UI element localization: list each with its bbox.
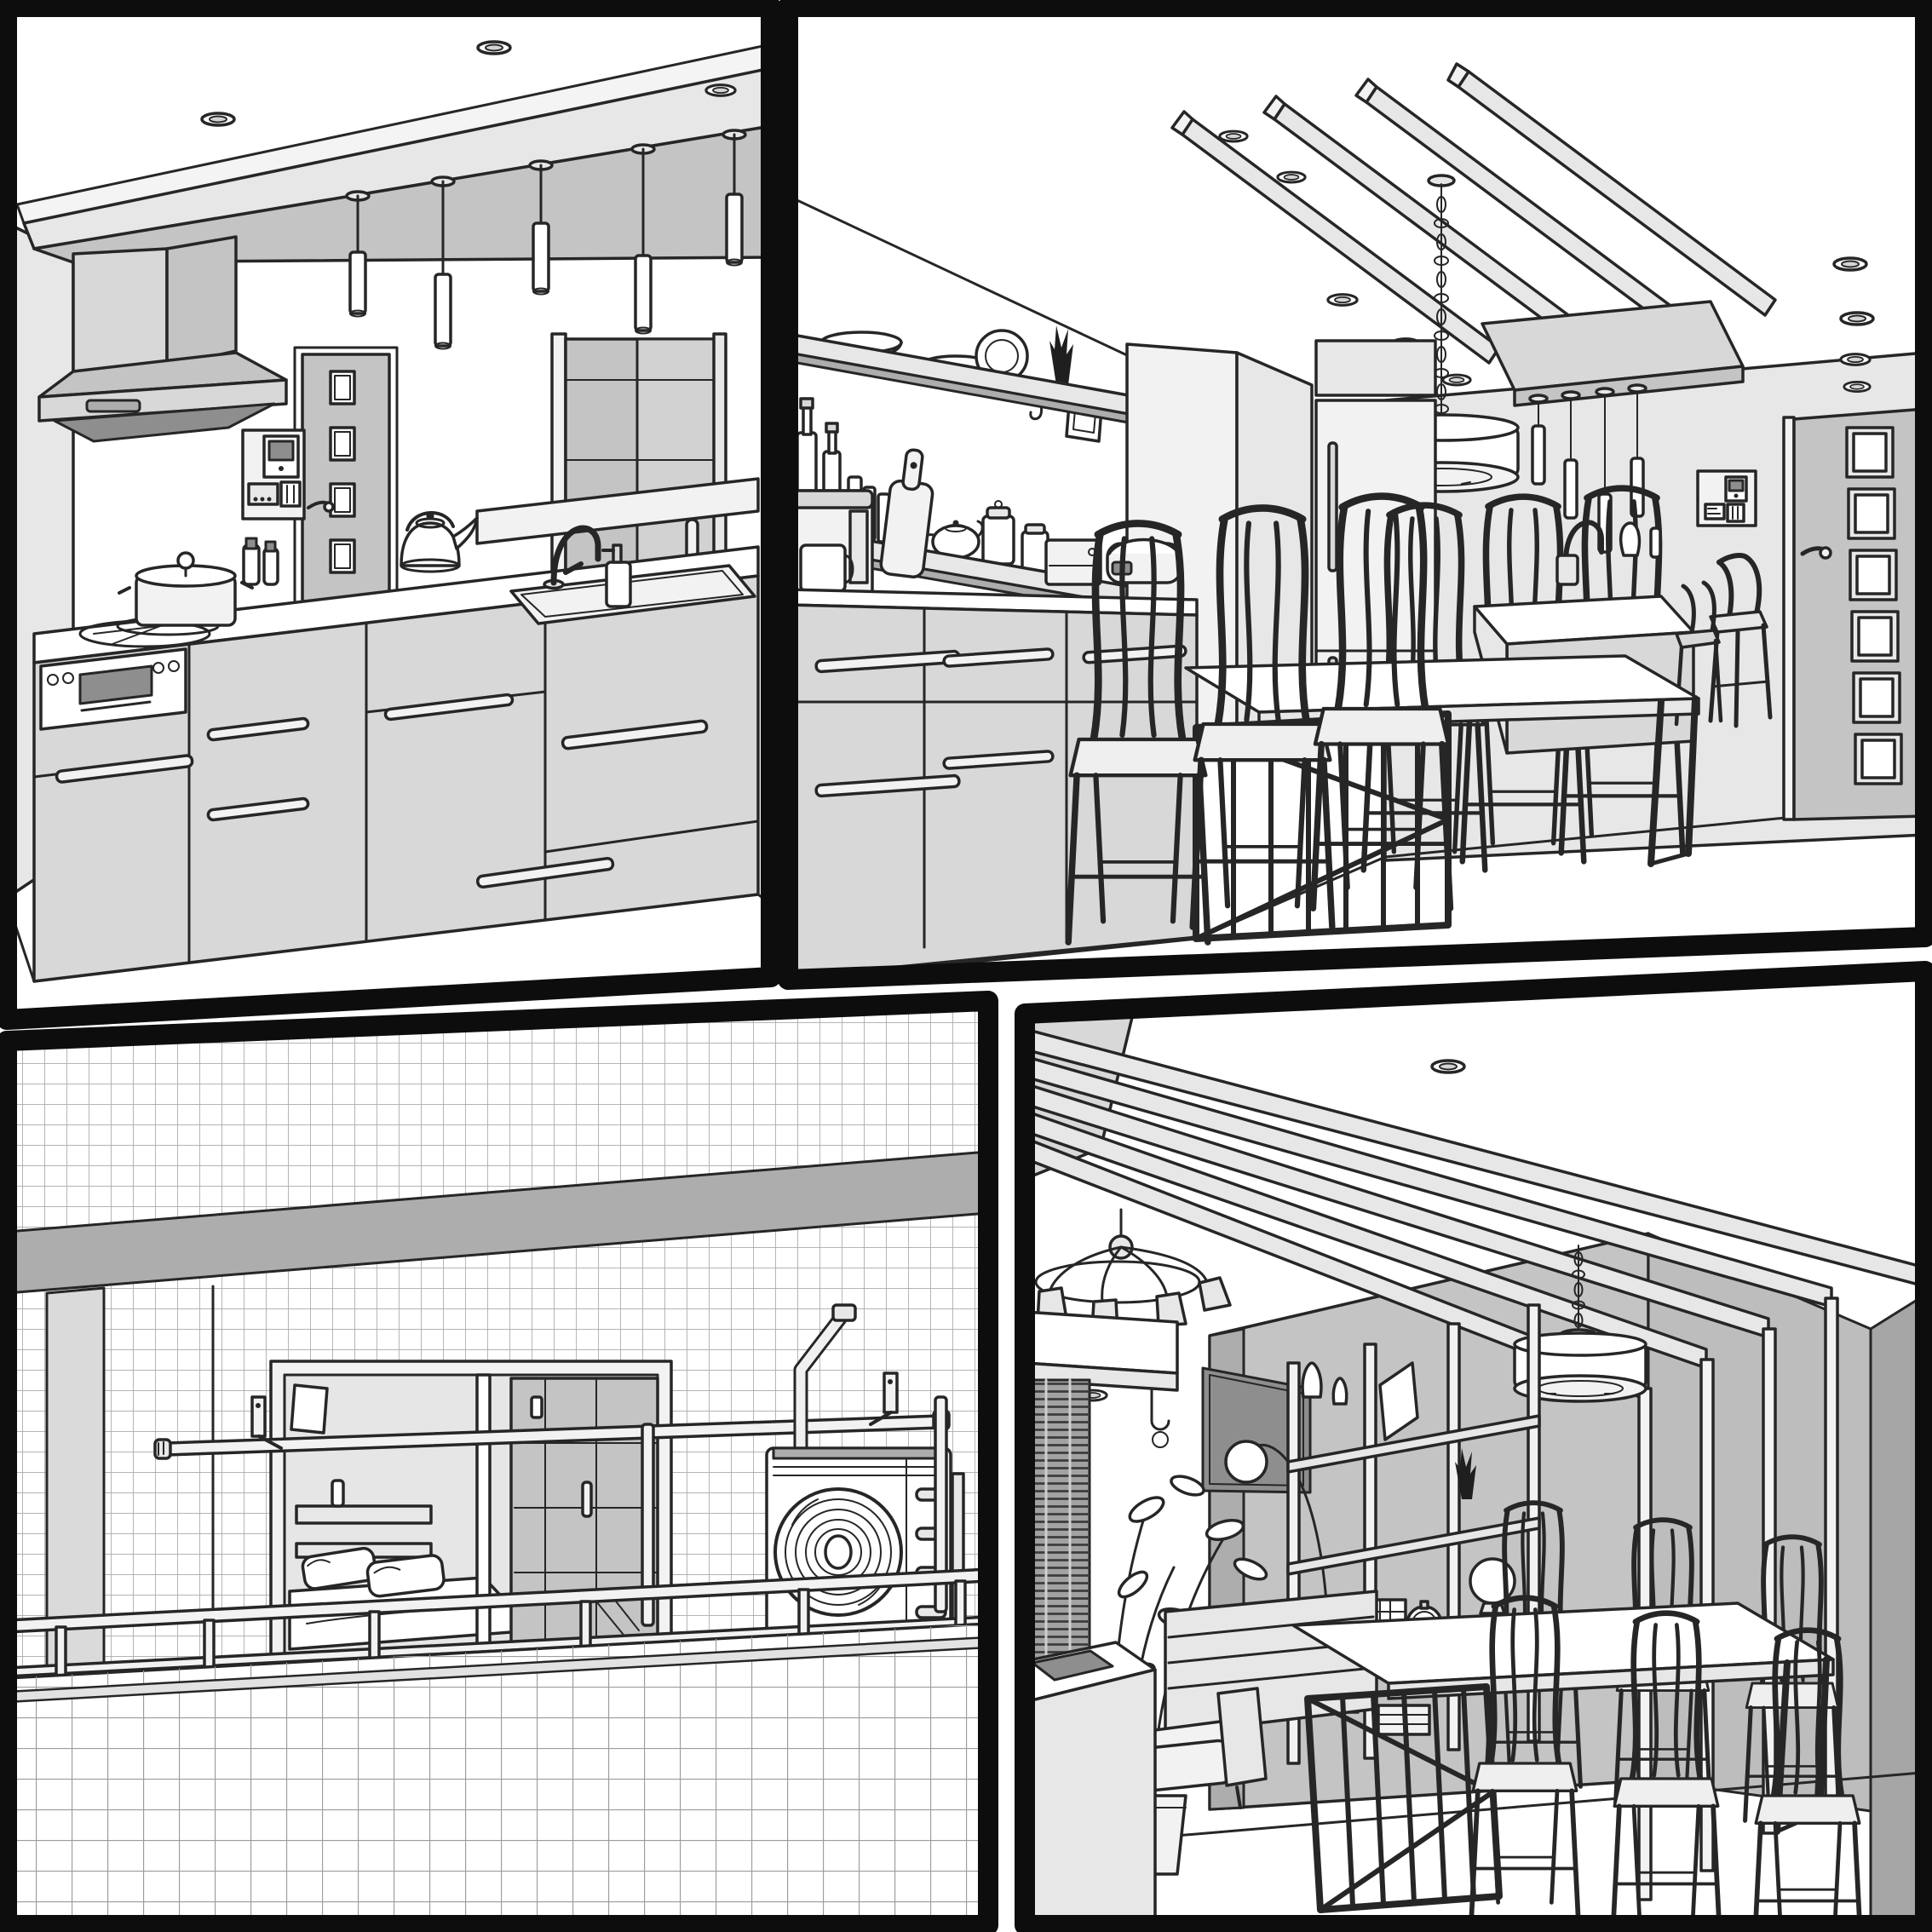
kitchen-counter-corner xyxy=(1025,1642,1155,1925)
vase xyxy=(1333,1378,1346,1404)
recessed-light xyxy=(478,42,510,54)
canister xyxy=(1022,532,1048,572)
wall-control-panel xyxy=(1698,471,1756,526)
vase xyxy=(1302,1363,1321,1397)
recessed-light xyxy=(202,113,234,125)
collage-canvas xyxy=(0,0,1932,1932)
comic-collage: four-panel monochrome line-art interior … xyxy=(0,0,1932,1932)
pepper-shaker xyxy=(264,549,278,584)
pole-bracket xyxy=(252,1397,265,1436)
door-6-windows xyxy=(1784,409,1925,819)
panel-kitchen-island xyxy=(7,7,771,1021)
pepper-mill xyxy=(1651,528,1660,557)
tiled-parapet xyxy=(7,1624,988,1925)
intercom-panel xyxy=(243,430,304,519)
sofa-armrest xyxy=(1218,1688,1266,1785)
island-kettle xyxy=(1621,523,1640,555)
picture-frame xyxy=(291,1385,327,1433)
canister xyxy=(983,516,1014,564)
glass-door-mullion xyxy=(477,1375,490,1665)
panel-dining-kitchen xyxy=(788,7,1925,981)
panel-living-dining xyxy=(1025,971,1932,1932)
pole-bracket xyxy=(884,1373,897,1412)
sliding-glass-door xyxy=(271,1361,671,1678)
panel-balcony xyxy=(7,1001,988,1925)
rice-cooker xyxy=(1107,540,1181,584)
soap-dispenser xyxy=(607,562,630,607)
coffee-maker xyxy=(791,491,872,596)
salt-shaker xyxy=(244,545,259,584)
door-4-windows xyxy=(295,348,397,605)
recessed-light xyxy=(706,85,735,96)
